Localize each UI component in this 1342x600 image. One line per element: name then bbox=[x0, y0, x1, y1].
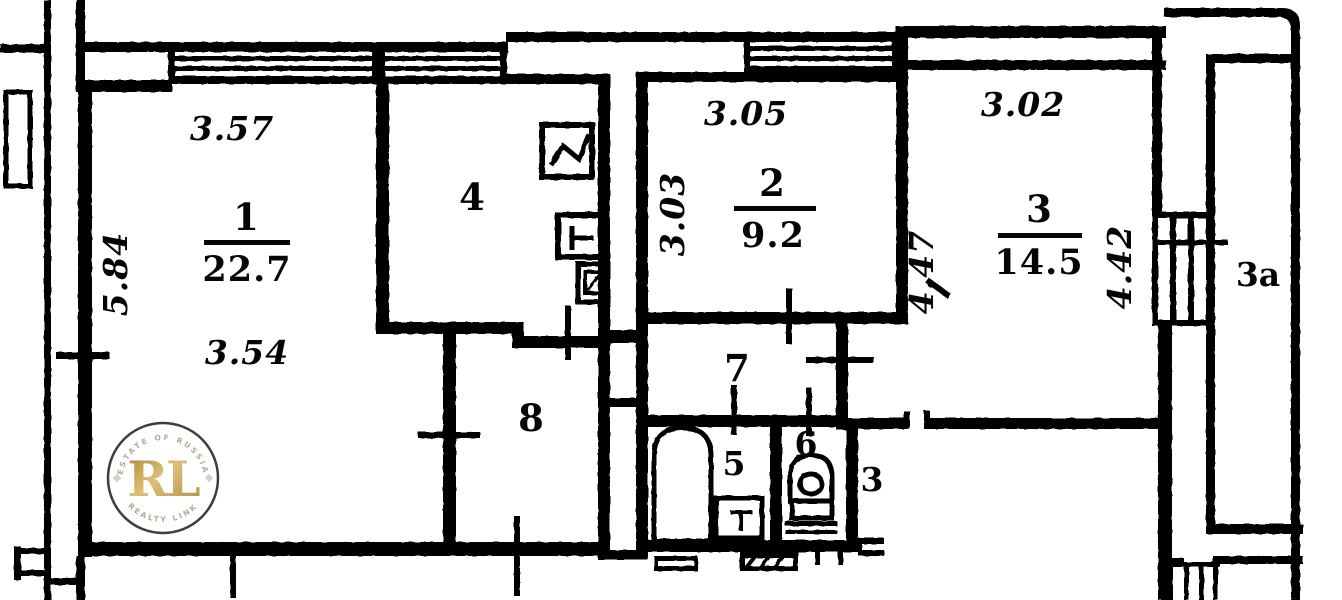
watermark-logo: RL ESTATE OF RUSSIA REALTY LINK bbox=[108, 423, 218, 533]
room1-dim-bottom: 3.54 bbox=[205, 333, 289, 372]
room1-area-label: 22.7 bbox=[202, 249, 291, 290]
room1-fraction-line bbox=[204, 240, 290, 245]
room3-dim-top: 3.02 bbox=[981, 85, 1065, 124]
floor-plan-page: 3.57 5.84 1 22.7 3.54 4 3.05 3.03 2 9.2 … bbox=[0, 0, 1342, 600]
floor-plan-drawing: 3.57 5.84 1 22.7 3.54 4 3.05 3.03 2 9.2 … bbox=[0, 0, 1342, 600]
room1-dim-top: 3.57 bbox=[190, 109, 274, 148]
plan-labels: 3.57 5.84 1 22.7 3.54 4 3.05 3.03 2 9.2 … bbox=[96, 85, 1280, 499]
washbasin-icon bbox=[716, 498, 762, 538]
window-lower-right bbox=[1168, 562, 1220, 600]
room5-number-label: 5 bbox=[723, 444, 746, 483]
room3-dim-right: 4.42 bbox=[1100, 225, 1139, 309]
room3-fraction-line bbox=[998, 233, 1082, 238]
kitchen-sink-icon bbox=[558, 215, 604, 257]
room2-number-label: 2 bbox=[759, 161, 785, 205]
room7-number-label: 7 bbox=[724, 346, 750, 390]
room2-area-label: 9.2 bbox=[741, 215, 805, 256]
room2-dim-left: 3.03 bbox=[653, 172, 692, 256]
room4-number-label: 4 bbox=[459, 175, 485, 219]
balcony-door-window bbox=[1152, 212, 1228, 326]
room8-number-label: 8 bbox=[518, 396, 544, 440]
stove-icon bbox=[542, 125, 592, 177]
room6-number-label: 6 bbox=[795, 424, 818, 463]
room2-fraction-line bbox=[734, 206, 816, 211]
room3a-number-label: 3a bbox=[1236, 255, 1280, 294]
bathtub-icon bbox=[654, 428, 711, 541]
toilet-icon bbox=[785, 455, 837, 534]
room3-dim-left: 4.47 bbox=[902, 230, 941, 314]
room3-number-label: 3 bbox=[1026, 187, 1052, 231]
room1-number-label: 1 bbox=[233, 195, 259, 239]
room2-dim-top: 3.05 bbox=[704, 94, 788, 133]
room1-dim-left: 5.84 bbox=[96, 232, 135, 316]
room3-area-label: 14.5 bbox=[994, 242, 1083, 283]
watermark-monogram: RL bbox=[127, 450, 200, 508]
room3-annex-number-label: 3 bbox=[861, 460, 884, 499]
